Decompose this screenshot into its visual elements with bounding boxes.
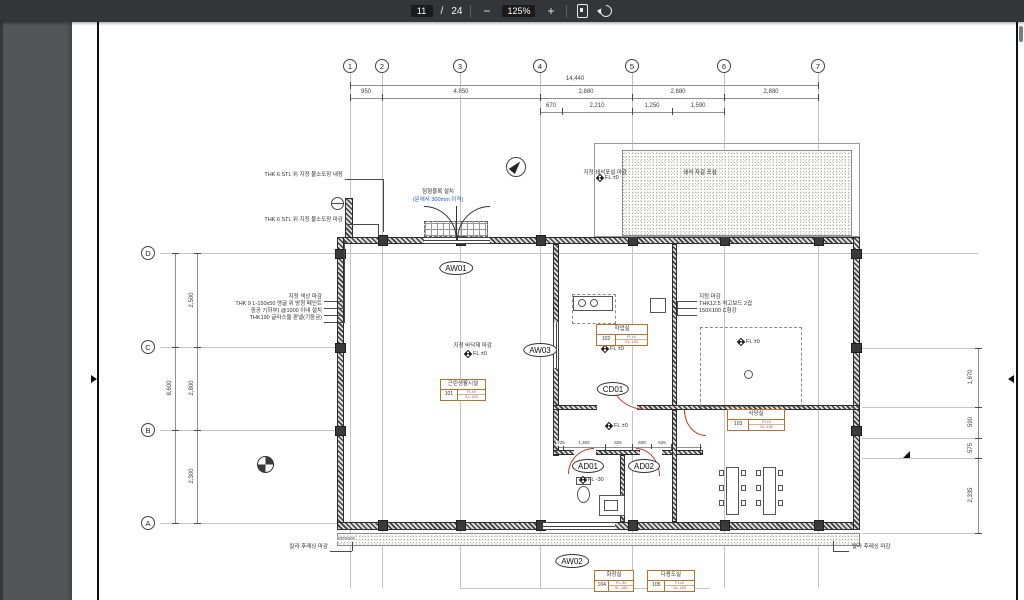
walkway-hatch-strip	[337, 533, 860, 546]
dining-table	[726, 467, 739, 515]
grid-bubble-col: 5	[625, 59, 639, 73]
page-separator: /	[441, 6, 444, 17]
wall	[853, 237, 860, 530]
room-name: 다용도실	[648, 571, 694, 581]
level-marker: FL ±0	[465, 351, 487, 357]
floor-plan-sheet: 1234567DCBA14,4409504,8502,8802,8802,880…	[72, 22, 1024, 600]
dimension-label: 625	[657, 441, 667, 446]
annotation-text: (문에서 300mm 이격)	[413, 198, 463, 204]
room-sl-level: SL-150	[749, 425, 784, 430]
chair	[756, 470, 761, 476]
annotation-text: 점형블록 설치	[422, 190, 454, 196]
room-name: 화장실	[595, 571, 633, 581]
dimension-label: 950	[360, 89, 372, 95]
leader-line	[378, 224, 379, 236]
room-number: 101	[441, 390, 458, 400]
dimension-label: 2,880	[577, 89, 594, 95]
annotation-text: THK190 글라스울 판넬(기둥금)	[250, 316, 322, 322]
chair	[778, 470, 783, 476]
zoom-in-button[interactable]: +	[543, 4, 558, 19]
chair	[719, 500, 724, 506]
dimension-label: 2,880	[762, 89, 779, 95]
dimension-tick	[818, 94, 819, 101]
level-marker: FL ±0	[597, 175, 619, 181]
annotation-text: 칼라 후레싱 마감	[852, 545, 890, 551]
fit-page-button[interactable]	[575, 4, 590, 19]
extension-line	[862, 438, 978, 439]
dimension-line	[197, 253, 198, 523]
level-text: FL ±0	[473, 351, 487, 357]
level-marker: FL -30	[580, 477, 604, 483]
dimension-tick	[975, 407, 982, 408]
level-text: FL ±0	[746, 339, 760, 345]
leader-line	[324, 301, 344, 302]
dimension-label: 225	[556, 441, 566, 446]
grid-bubble-row: C	[141, 340, 155, 354]
room-tag: 작업실102FL±0SL-150	[596, 324, 648, 346]
dimension-label: 14,440	[565, 76, 585, 82]
leader-line	[352, 541, 353, 551]
level-text: FL ±0	[614, 423, 628, 429]
center-mark	[91, 375, 97, 383]
dimension-tick	[194, 253, 201, 254]
dimension-tick	[632, 108, 633, 115]
annotation-text: 칼라 후레싱 마감	[290, 545, 328, 551]
leader-line	[677, 301, 678, 316]
opening-tag: AD01	[572, 459, 604, 473]
room-number: 103	[728, 420, 749, 430]
leader-line	[344, 240, 345, 323]
door-center-line	[456, 206, 457, 240]
dimension-tick	[382, 94, 383, 101]
pdf-toolbar: 11 / 24 − 125% +	[0, 0, 1024, 22]
column	[537, 236, 545, 245]
column	[336, 427, 345, 435]
dimension-tick	[724, 108, 725, 115]
page-total: 24	[451, 6, 462, 17]
dimension-label: 600X600	[336, 537, 356, 542]
grid-bubble-col: 3	[453, 59, 467, 73]
zoom-level: 125%	[502, 5, 535, 17]
chair	[719, 485, 724, 491]
toolbar-divider	[470, 5, 471, 18]
dimension-tick	[818, 82, 819, 89]
room-tag: 식당실103FL±0SL-150	[727, 409, 785, 431]
leader-line	[678, 308, 697, 309]
leader-line	[324, 308, 344, 309]
extension-line	[862, 458, 978, 459]
leader-line	[383, 179, 384, 232]
dimension-label: 1,870	[968, 368, 974, 385]
toilet-bowl	[577, 486, 590, 503]
level-text: FL ±0	[610, 346, 624, 352]
level-marker: FL ±0	[602, 346, 624, 352]
extension-line	[862, 533, 978, 534]
dining-table	[763, 467, 776, 515]
dimension-label: 4,850	[452, 89, 469, 95]
dimension-line	[350, 98, 818, 99]
dimension-line	[556, 447, 702, 448]
room-tag: 근린생활시설101FL±0SL-150	[440, 379, 486, 401]
detail-callout-divider	[331, 203, 344, 204]
vertical-scrollbar[interactable]	[1019, 26, 1023, 42]
annotation-text: THK 9 L-150x50 앵글 위 방청 페인트	[235, 302, 322, 308]
room-number: 104	[595, 581, 609, 591]
dimension-line	[978, 348, 979, 533]
chair	[756, 485, 761, 491]
gravel-hatch-area	[622, 150, 852, 236]
grid-line-vertical	[350, 73, 351, 588]
annotation-text: 지정 마감	[699, 295, 721, 301]
sink-basin	[604, 500, 618, 511]
leader-line	[324, 322, 344, 323]
dimension-label: 670	[545, 103, 557, 109]
room-tag: 화장실104FL-30SL-180	[594, 570, 634, 592]
room-sl-level: SL-150	[458, 395, 485, 400]
level-symbol	[596, 174, 604, 182]
dimension-tick	[975, 458, 982, 459]
column	[852, 427, 861, 435]
column	[815, 236, 823, 245]
viewer-edge-strip	[0, 22, 3, 600]
grid-line-horizontal	[160, 430, 346, 431]
extension-line	[862, 407, 978, 408]
chair	[719, 470, 724, 476]
page-number-input[interactable]: 11	[411, 5, 433, 17]
rotate-icon	[597, 3, 614, 20]
room-name: 근린생활시설	[441, 380, 485, 390]
column	[629, 236, 637, 245]
dimension-tick	[540, 94, 541, 101]
chair	[778, 500, 783, 506]
window-aw02	[543, 522, 615, 530]
dimension-tick	[975, 438, 982, 439]
column	[721, 236, 729, 245]
chair	[778, 485, 783, 491]
annotation-text: 쇄석 자갈 포설	[683, 171, 716, 177]
wall	[672, 244, 677, 410]
dimension-label: 590	[968, 416, 974, 428]
grid-line-vertical	[540, 73, 541, 588]
level-symbol	[601, 345, 609, 353]
dimension-label: 2,800	[189, 379, 195, 396]
dimension-label: 600	[637, 441, 647, 446]
level-symbol	[737, 338, 745, 346]
column	[379, 521, 387, 530]
column	[336, 344, 345, 352]
opening-tag: AW03	[523, 343, 557, 357]
center-mark	[1008, 375, 1014, 383]
level-text: FL ±0	[605, 175, 619, 181]
level-symbol	[579, 476, 587, 484]
dimension-tick	[172, 430, 179, 431]
dimension-tick	[172, 347, 179, 348]
grid-bubble-col: 2	[375, 59, 389, 73]
grid-bubble-col: 6	[717, 59, 731, 73]
dimension-label: 2,880	[669, 89, 686, 95]
room-name: 작업실	[597, 325, 647, 335]
dimension-line	[175, 253, 176, 523]
dimension-label: 2,335	[968, 486, 974, 503]
rotate-button[interactable]	[598, 4, 613, 19]
grid-bubble-row: D	[141, 246, 155, 260]
dimension-tick	[724, 94, 725, 101]
leader-line	[833, 541, 834, 551]
room-sl-level: SL-150	[616, 340, 647, 345]
leader-line	[345, 224, 378, 225]
dimension-label: 2,210	[588, 103, 605, 109]
extension-line	[862, 348, 978, 349]
dimension-tick	[672, 108, 673, 115]
room-tag: 다용도실105FL±0SL-150	[647, 570, 695, 592]
wall	[337, 237, 860, 244]
annotation-text: 지정 색상 마감	[289, 295, 322, 301]
opening-tag: AD02	[628, 459, 660, 473]
level-marker: FL ±0	[738, 339, 760, 345]
annotation-text: THK12.5 석고보드 2겹	[699, 302, 752, 308]
grid-bubble-col: 7	[811, 59, 825, 73]
grid-bubble-row: B	[141, 423, 155, 437]
sink-bowl	[578, 299, 586, 307]
dimension-line	[350, 85, 818, 86]
dimension-tick	[194, 430, 201, 431]
leader-line	[678, 315, 697, 316]
dimension-label: 1,250	[643, 103, 660, 109]
door-swing-arc	[424, 206, 457, 240]
dimension-label: 825	[613, 441, 623, 446]
column	[379, 236, 387, 245]
dimension-label: 2,300	[189, 467, 195, 484]
column	[629, 521, 637, 530]
dimension-tick	[350, 94, 351, 101]
wall	[345, 198, 353, 238]
leader-line	[833, 551, 849, 552]
grid-line-vertical	[382, 73, 383, 588]
annotation-text: THK 6 STL 위 지정 불소도장 마감	[264, 218, 343, 224]
annotation-text: 지정 바닥재 마감	[454, 344, 492, 350]
annotation-text: 중공 7(하부) @1000 이내 설치	[251, 309, 322, 315]
column	[721, 521, 729, 530]
column	[852, 250, 861, 258]
fit-page-icon	[577, 4, 588, 18]
dimension-label: 1,300	[577, 441, 590, 446]
leader-line	[345, 179, 383, 180]
wall	[672, 410, 677, 522]
chair	[741, 500, 746, 506]
level-marker: FL ±0	[606, 423, 628, 429]
chair	[741, 485, 746, 491]
appliance	[650, 298, 666, 313]
grid-line-vertical	[460, 73, 461, 588]
leader-line	[330, 551, 352, 552]
dimension-label: 575	[968, 442, 974, 454]
floor-drain	[744, 370, 753, 379]
dimension-label: 1,590	[689, 103, 706, 109]
sink-bowl	[590, 299, 598, 307]
room-number: 102	[597, 335, 616, 345]
zoom-out-button[interactable]: −	[479, 4, 494, 19]
opening-tag: AW01	[439, 261, 473, 275]
room-name: 식당실	[728, 410, 784, 420]
grid-bubble-col: 4	[533, 59, 547, 73]
dimension-tick	[540, 108, 541, 115]
room-number: 105	[648, 581, 665, 591]
opening-tag: AW02	[555, 554, 589, 568]
grid-bubble-col: 1	[343, 59, 357, 73]
sheet-border-line	[97, 22, 99, 600]
dimension-tick	[350, 82, 351, 89]
level-text: FL -30	[588, 477, 604, 483]
room-sl-level: SL-180	[609, 586, 633, 591]
grid-bubble-row: A	[141, 516, 155, 530]
column	[852, 344, 861, 352]
grid-line-horizontal	[160, 347, 346, 348]
level-symbol	[605, 422, 613, 430]
room-sl-level: SL-150	[665, 586, 694, 591]
toolbar-divider	[566, 5, 567, 18]
sheet-border-line	[1016, 22, 1018, 600]
leader-line	[324, 315, 344, 316]
chair	[756, 500, 761, 506]
annotation-text: THK 6 STL 위 지정 불소도장 내장	[264, 173, 343, 179]
dimension-tick	[632, 94, 633, 101]
dimension-label: 2,500	[189, 291, 195, 308]
dimension-tick	[172, 523, 179, 524]
dimension-tick	[194, 523, 201, 524]
chair	[741, 470, 746, 476]
dimension-label: 8,600	[167, 379, 173, 396]
level-symbol	[464, 350, 472, 358]
column	[457, 521, 465, 530]
dimension-tick	[172, 253, 179, 254]
leader-line	[678, 301, 697, 302]
dimension-tick	[975, 533, 982, 534]
annotation-text: 150X100 C형강	[699, 309, 737, 315]
benchmark-symbol	[257, 456, 274, 473]
dimension-tick	[975, 348, 982, 349]
pdf-page[interactable]: 1234567DCBA14,4409504,8502,8802,8802,880…	[72, 22, 1024, 600]
section-mark	[903, 451, 910, 458]
door-swing-arc-red	[684, 410, 706, 436]
dimension-tick	[194, 347, 201, 348]
door-swing-arc	[457, 206, 490, 240]
wall	[337, 237, 344, 530]
dimension-tick	[562, 108, 563, 115]
column	[815, 521, 823, 530]
